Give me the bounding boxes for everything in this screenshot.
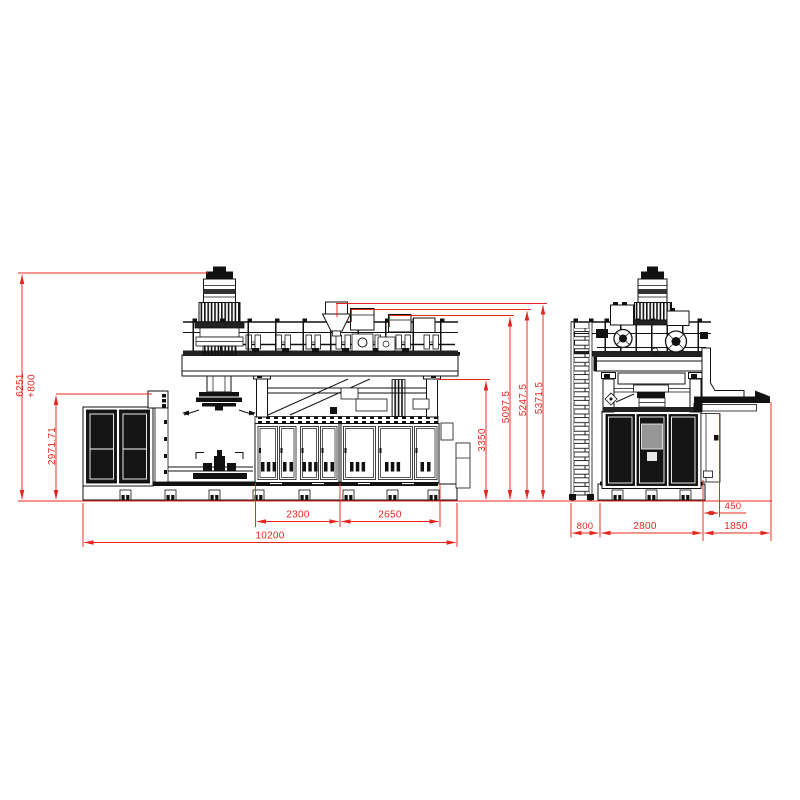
side-discharge-conveyor: [694, 348, 771, 482]
front-center-cabinet-right: [341, 424, 439, 483]
dim-total-height-label: 6251: [15, 373, 26, 397]
side-cabinet: [602, 412, 701, 489]
side-clamp-frame: [602, 373, 703, 413]
dim-head-height-3-label: 5371.5: [534, 382, 545, 415]
dim-bay-width-1-label: 2300: [286, 510, 310, 521]
front-extruder-motor: [195, 267, 244, 356]
front-left-cabinet: [83, 407, 153, 486]
dim-head-height-2-label: 5247.5: [518, 384, 529, 417]
side-ladder: [569, 322, 594, 500]
dim-bay-width-2-label: 2650: [378, 510, 402, 521]
drawing-canvas: 6251 +800 2971.71 3350 5097.5 5247.5: [0, 0, 800, 800]
dim-ladder-width-label: 800: [577, 521, 594, 532]
front-view: [83, 267, 470, 501]
front-die-head-area: [148, 376, 256, 482]
dim-discharge-width-label: 1850: [724, 521, 748, 532]
dim-total-height-extra-label: +800: [27, 374, 38, 398]
dim-body-width: 2800: [602, 521, 702, 533]
dim-overall-length-label: 10200: [255, 531, 284, 542]
dim-discharge-offset-label: 450: [725, 501, 742, 512]
dim-ladder-width: 800: [571, 503, 600, 538]
technical-drawing: 6251 +800 2971.71 3350 5097.5 5247.5: [0, 0, 800, 800]
dim-body-width-label: 2800: [633, 521, 657, 532]
dim-cabinet-height-label: 2971.71: [47, 427, 58, 465]
dim-frame-height-label: 3350: [477, 428, 488, 452]
side-view: [569, 267, 770, 501]
dim-head-height-1-label: 5097.5: [501, 391, 512, 424]
